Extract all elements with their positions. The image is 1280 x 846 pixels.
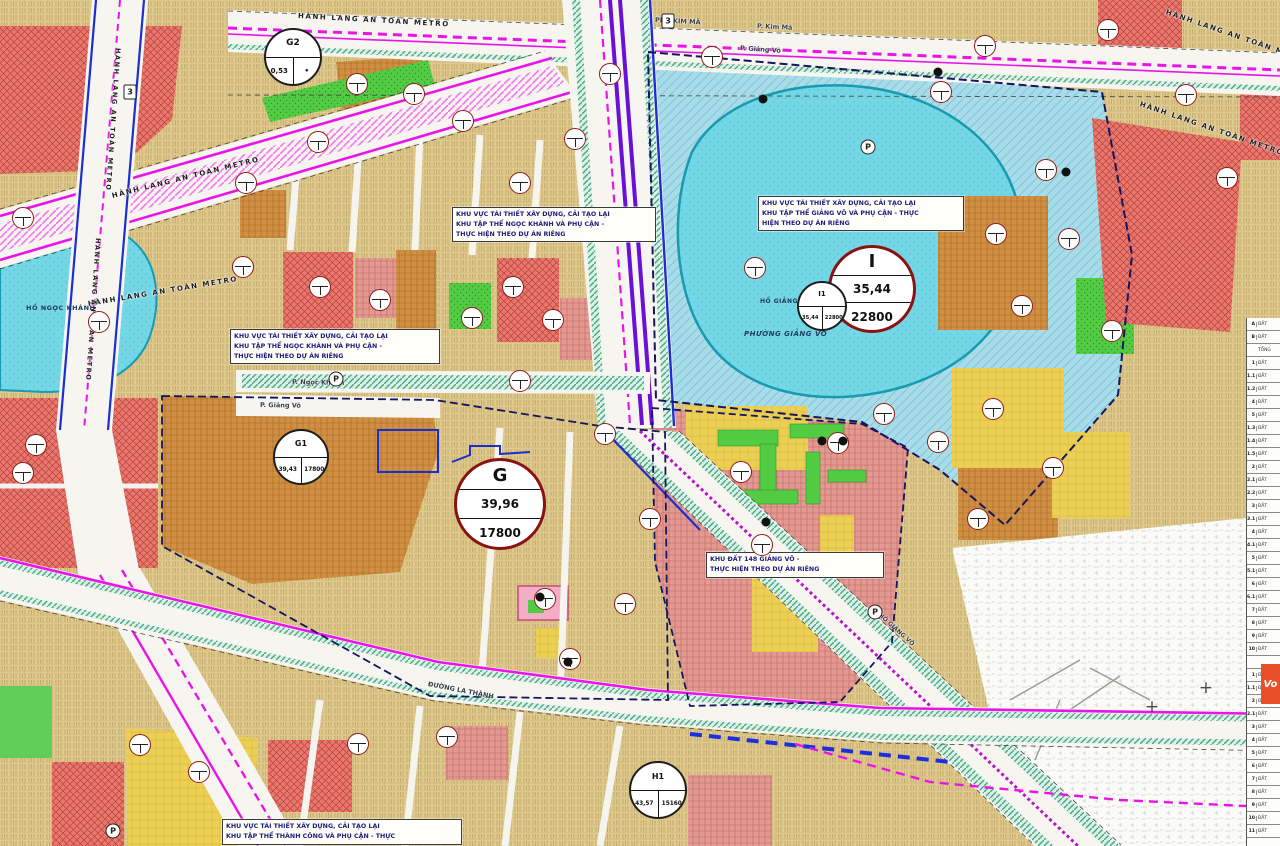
legend-row: 5ĐẤT xyxy=(1247,747,1280,760)
legend-row-num: B xyxy=(1247,335,1257,340)
legend-row-text: ĐẤT xyxy=(1257,816,1267,821)
legend-row-text: ĐẤT xyxy=(1257,426,1267,431)
legend-row-text: ĐẤT xyxy=(1257,569,1267,574)
legend-row-num: 2 xyxy=(1247,465,1257,470)
legend-row-num: 1 xyxy=(1247,673,1257,678)
legend-strip: AĐẤTBĐẤTTỔNG1ĐẤT1.1ĐẤT1.2ĐẤT4ĐẤT5ĐẤT1.3Đ… xyxy=(1246,318,1280,846)
legend-row-num: 11 xyxy=(1247,829,1257,834)
legend-row-num: 5 xyxy=(1247,556,1257,561)
legend-row-text: ĐẤT xyxy=(1257,465,1267,470)
legend-row: 6ĐẤT xyxy=(1247,578,1280,591)
legend-row-text: ĐẤT xyxy=(1257,491,1267,496)
legend-row-text: ĐẤT xyxy=(1257,647,1267,652)
legend-row: 5.1ĐẤT xyxy=(1247,565,1280,578)
legend-row: 4.1ĐẤT xyxy=(1247,539,1280,552)
legend-row-num: 2.2 xyxy=(1247,491,1257,496)
legend-row-text: ĐẤT xyxy=(1257,803,1267,808)
legend-row: 9ĐẤT xyxy=(1247,630,1280,643)
legend-row: 10ĐẤT xyxy=(1247,643,1280,656)
legend-row-num: 5.1 xyxy=(1247,569,1257,574)
legend-row-text: ĐẤT xyxy=(1257,621,1267,626)
legend-row-text: ĐẤT xyxy=(1257,608,1267,613)
legend-row-text: ĐẤT xyxy=(1257,556,1267,561)
legend-row-num: 1.3 xyxy=(1247,426,1257,431)
legend-row-text: ĐẤT xyxy=(1257,413,1267,418)
legend-row-text: ĐẤT xyxy=(1257,335,1267,340)
legend-row-num: 9 xyxy=(1247,634,1257,639)
legend-row-num: 5 xyxy=(1247,413,1257,418)
legend-row-num: 2 xyxy=(1247,699,1257,704)
legend-row: 11ĐẤT xyxy=(1247,825,1280,838)
legend-row-text: ĐẤT xyxy=(1257,725,1267,730)
legend-row: 2ĐẤT xyxy=(1247,461,1280,474)
legend-row-text: ĐẤT xyxy=(1257,400,1267,405)
legend-row-text: ĐẤT xyxy=(1257,712,1267,717)
legend-row: 7ĐẤT xyxy=(1247,773,1280,786)
legend-row-num: 1.5 xyxy=(1247,452,1257,457)
legend-row-text: ĐẤT xyxy=(1257,530,1267,535)
legend-row: 7ĐẤT xyxy=(1247,604,1280,617)
legend-row: AĐẤT xyxy=(1247,318,1280,331)
legend-row-text: ĐẤT xyxy=(1257,322,1267,327)
legend-row-num: 10 xyxy=(1247,647,1257,652)
legend-row-num: 3 xyxy=(1247,504,1257,509)
legend-row: TỔNG xyxy=(1247,344,1280,357)
legend-row: 3.1ĐẤT xyxy=(1247,513,1280,526)
legend-row: 2.2ĐẤT xyxy=(1247,487,1280,500)
legend-row-text: ĐẤT xyxy=(1257,634,1267,639)
legend-row-text: ĐẤT xyxy=(1257,452,1267,457)
legend-row-num: 5 xyxy=(1247,751,1257,756)
legend-row-num: 8 xyxy=(1247,621,1257,626)
legend-row-num: 7 xyxy=(1247,608,1257,613)
legend-row-num: 1.1 xyxy=(1247,374,1257,379)
legend-row: 10ĐẤT xyxy=(1247,812,1280,825)
legend-row-num: 4 xyxy=(1247,530,1257,535)
legend-row-text: TỔNG xyxy=(1257,348,1271,353)
legend-row: 1.4ĐẤT xyxy=(1247,435,1280,448)
legend-row: 1.1ĐẤT xyxy=(1247,370,1280,383)
legend-row-num: 10 xyxy=(1247,816,1257,821)
legend-row: 4ĐẤT xyxy=(1247,396,1280,409)
legend-row-num: 6 xyxy=(1247,764,1257,769)
legend-row: 5ĐẤT xyxy=(1247,409,1280,422)
legend-row-text: ĐẤT xyxy=(1257,829,1267,834)
legend-row: 3ĐẤT xyxy=(1247,500,1280,513)
legend-row: 1.2ĐẤT xyxy=(1247,383,1280,396)
legend-row-text: ĐẤT xyxy=(1257,439,1267,444)
map-base-layer xyxy=(0,0,1280,846)
legend-row: 5ĐẤT xyxy=(1247,552,1280,565)
legend-row-text: ĐẤT xyxy=(1257,374,1267,379)
legend-row-num: 4.1 xyxy=(1247,543,1257,548)
legend-row-text: ĐẤT xyxy=(1257,738,1267,743)
legend-row-text: ĐẤT xyxy=(1257,478,1267,483)
legend-row: BĐẤT xyxy=(1247,331,1280,344)
legend-row-num: 9 xyxy=(1247,803,1257,808)
logo-box: Vo xyxy=(1261,664,1280,704)
legend-row-num: 1.2 xyxy=(1247,387,1257,392)
legend-row: 3ĐẤT xyxy=(1247,721,1280,734)
legend-row: 2.1ĐẤT xyxy=(1247,708,1280,721)
legend-row-num: 7 xyxy=(1247,777,1257,782)
legend-row-num: 1 xyxy=(1247,361,1257,366)
legend-row-text: ĐẤT xyxy=(1257,582,1267,587)
legend-row-num: 8 xyxy=(1247,790,1257,795)
legend-row-num: 3 xyxy=(1247,725,1257,730)
zoning-map-canvas[interactable]: HÀNH LANG AN TOÀN METROHÀNH LANG AN TOÀN… xyxy=(0,0,1280,846)
legend-row-num: 2.1 xyxy=(1247,712,1257,717)
legend-row-text: ĐẤT xyxy=(1257,517,1267,522)
legend-row-text: ĐẤT xyxy=(1257,764,1267,769)
legend-row: 9ĐẤT xyxy=(1247,799,1280,812)
legend-row-text: ĐẤT xyxy=(1257,504,1267,509)
legend-row-num: 1.4 xyxy=(1247,439,1257,444)
legend-row-text: ĐẤT xyxy=(1257,543,1267,548)
legend-row: 6ĐẤT xyxy=(1247,760,1280,773)
legend-row-num: A xyxy=(1247,322,1257,327)
legend-row-text: ĐẤT xyxy=(1257,790,1267,795)
legend-row-text: ĐẤT xyxy=(1257,777,1267,782)
legend-row: 8ĐẤT xyxy=(1247,617,1280,630)
legend-row-text: ĐẤT xyxy=(1257,595,1267,600)
legend-row: 6.1ĐẤT xyxy=(1247,591,1280,604)
legend-row: 4ĐẤT xyxy=(1247,526,1280,539)
legend-row: 8ĐẤT xyxy=(1247,786,1280,799)
legend-row-num: 2.1 xyxy=(1247,478,1257,483)
legend-row-text: ĐẤT xyxy=(1257,751,1267,756)
legend-row-num: 4 xyxy=(1247,400,1257,405)
legend-row: 4ĐẤT xyxy=(1247,734,1280,747)
legend-row-num: 6.1 xyxy=(1247,595,1257,600)
legend-row-text: ĐẤT xyxy=(1257,361,1267,366)
legend-row: 1ĐẤT xyxy=(1247,357,1280,370)
legend-row: 2.1ĐẤT xyxy=(1247,474,1280,487)
legend-row-text: ĐẤT xyxy=(1257,387,1267,392)
legend-row-num: 4 xyxy=(1247,738,1257,743)
legend-row-num: 1.1 xyxy=(1247,686,1257,691)
legend-row-num: 6 xyxy=(1247,582,1257,587)
legend-row: 1.5ĐẤT xyxy=(1247,448,1280,461)
legend-row: 1.3ĐẤT xyxy=(1247,422,1280,435)
legend-row-num: 3.1 xyxy=(1247,517,1257,522)
